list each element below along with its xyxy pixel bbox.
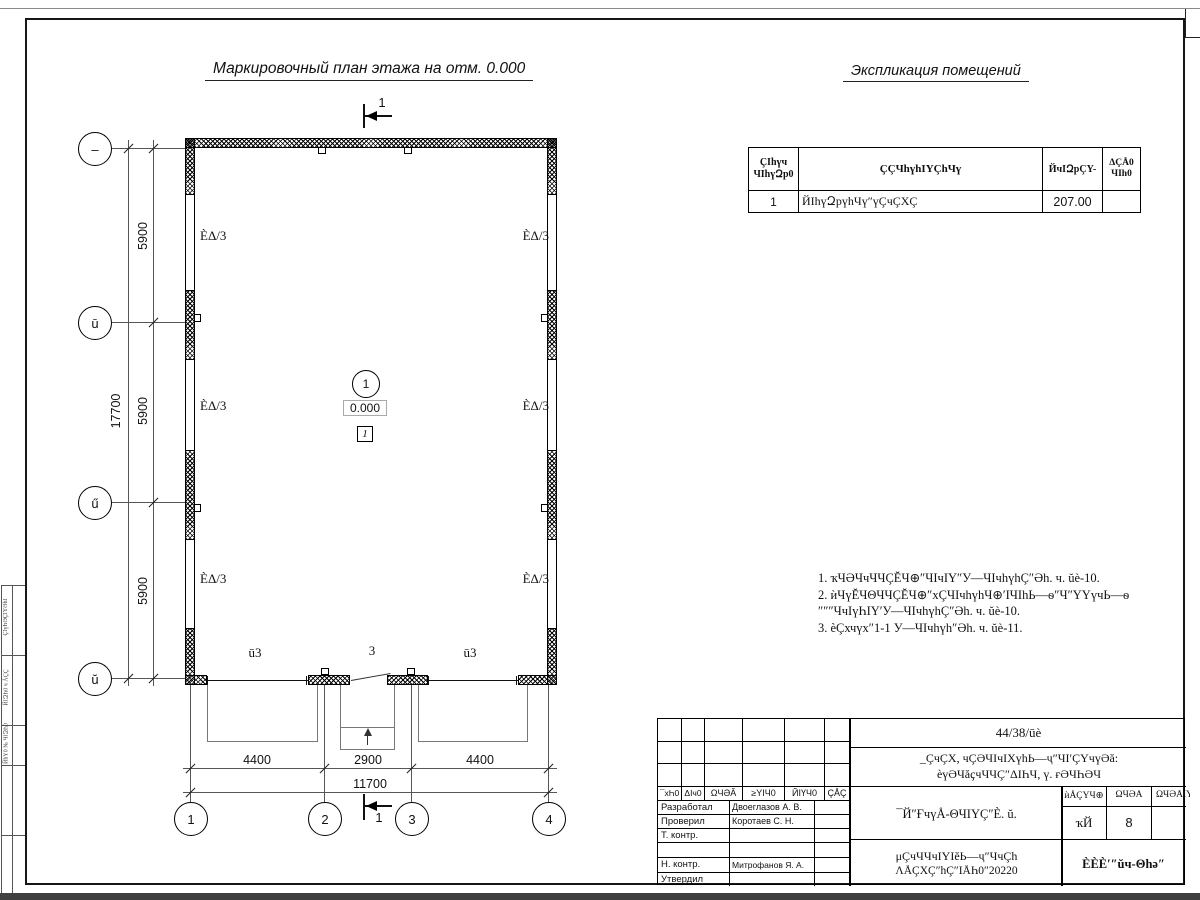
header-line: ΔÇÅ0 [1106,158,1137,169]
header-line: ҪIhүч [752,157,795,169]
header-line: ЧIh0 [1106,169,1137,180]
axis-label: 3 [408,812,415,827]
line [849,839,1186,840]
axis-bubble: ŭ [78,662,112,696]
document-type: μÇчЧЧчIYIĕЬ—ҷ″ЧчÇh [854,849,1059,864]
axis-label: 1 [187,812,194,827]
line [1061,806,1186,807]
line [814,800,815,886]
note-line: 2. ѝЧүĔЧΘЧЧÇĔЧ⊕″хÇЧIчhүhЧ⊕′IЧIhЬ—ѳ″Ч″ҮYү… [818,587,1148,604]
sheet-top-edge [0,8,1200,9]
line [658,872,849,873]
wall-segment [547,450,557,540]
cell-note [1103,191,1141,213]
sheets-header: ΩЧӘÅIY [1152,790,1190,800]
sheet-bottom-band [0,893,1200,900]
wall-segment [185,450,195,540]
pilaster [404,147,412,154]
axis-label: ŭ [91,672,98,687]
document-number: 44/38/ūè [851,725,1186,741]
person-name: Митрофанов Я. А. [732,860,812,870]
explication-title: Экспликация помещений [843,63,1029,82]
wall-segment [547,290,557,360]
axis-line [548,685,549,802]
dimension-line [183,768,557,769]
axis-bubble: 1 [174,802,208,836]
dimension-value: 4400 [455,753,505,767]
plan-title: Маркировочный план этажа на отм. 0.000 [205,60,533,81]
role-label: Проверил [661,816,727,827]
axis-bubble: 2 [308,802,342,836]
wall-panel [185,195,195,290]
line [658,763,849,764]
axis-label: 2 [321,812,328,827]
dimension-value: 11700 [340,777,400,791]
dimension-value: 5900 [136,218,150,254]
line [658,800,849,801]
format-box [1185,9,1200,38]
room-box-value: 1 [362,428,368,440]
role-label: Т. контр. [661,830,727,841]
axis-line [112,502,185,503]
organization-name: ÈÈÈ′″ŭч-Θhә″ [1063,857,1184,872]
pilaster [321,668,329,675]
panel-mark-label: ÈΔ/3 [200,571,246,587]
sheet-title: ¯Й″ҒчүÅ-ΘЧIYÇ″È. ŭ. [854,807,1059,822]
ramp-outline [207,685,318,742]
rev-header: ¯хҺ0 [658,788,681,798]
cell-number: 1 [749,191,799,213]
axis-line [112,148,185,149]
cell-name: ЙIhүԶpүhЧү″үÇчÇХÇ [799,191,1043,213]
section-label: 1 [372,810,386,825]
gate-mark-label: ū3 [240,645,270,661]
strip-line [12,585,13,893]
cell-area: 207.00 [1043,191,1103,213]
axis-line [324,685,325,802]
role-label: Утвердил [661,874,727,885]
axis-line [190,685,191,802]
wall-panel [185,360,195,450]
line [729,800,730,886]
room-number-circle: 1 [352,370,380,398]
door-mark-label: 3 [364,643,380,659]
panel-mark-label: ÈΔ/3 [503,398,549,414]
line [658,828,849,829]
panel-mark-label: ÈΔ/3 [200,228,246,244]
line [849,747,1186,748]
section-arrow-icon [366,111,377,121]
strip-line [1,585,25,586]
table-row: 1 ЙIhүԶpүhЧү″үÇчÇХÇ 207.00 [749,191,1141,213]
line [658,842,849,843]
elevation-label: 0.000 [343,400,387,416]
rev-header: ЙIҮЧ0 [785,788,824,798]
project-description: ѐүӘЧăҫчЧЧÇ″ΔIҺЧ, ү. ғӘЧҺӘЧ [858,767,1180,782]
gate-leaf [207,680,308,681]
axis-line [112,322,185,323]
column-header: ҪIhүч ЧIhүԶp0 [749,148,799,191]
dimension-value: 2900 [343,753,393,767]
gate-jamb [207,676,208,685]
header-line: ЧIhүԶp0 [752,169,795,181]
room-number: 1 [363,377,370,391]
note-line: 3. ѐÇхчүх″1-1 У—ЧIчhүh″Әh. ч. ŭè-11. [818,620,1148,637]
axis-label: ū [91,316,98,331]
axis-label: – [91,142,98,157]
pilaster [194,504,201,512]
dimension-line [183,792,557,793]
gate-mark-label: ū3 [455,645,485,661]
note-line: ″″″ЧчIүҺIY′У—ЧIчhүhÇ″Әh. ч. ŭè-10. [818,603,1148,620]
rev-header: ΔIч0 [682,788,704,798]
panel-mark-label: ÈΔ/3 [503,571,549,587]
drawing-sheet: ҪIүҺӘҪIYӘhI ЙIԶҺ0 ч ÅÇÇ ЙhY0 № ЧIԶҺ0 Мар… [0,0,1200,900]
axis-label: 4 [545,812,552,827]
explication-table: ҪIhүч ЧIhүԶp0 ҪÇЧhүhIYÇhЧү ЙчIԶpÇY- ΔÇÅ0… [748,147,1141,213]
line [658,741,849,742]
panel-mark-label: ÈΔ/3 [503,228,549,244]
dimension-line [153,140,154,686]
axis-bubble: 3 [395,802,429,836]
strip-stamp-text: ҪIүҺӘҪIYӘhI [3,587,9,647]
strip-line [1,655,25,656]
dimension-value: 5900 [136,573,150,609]
axis-bubble: 4 [532,802,566,836]
sheet-header: ΩЧӘĂ [1107,790,1151,800]
axis-label: ű [91,496,98,511]
gate-leaf [428,680,518,681]
room-box-label: 1 [357,426,373,442]
wall-segment [547,138,557,195]
project-description: _ÇчÇХ, чÇӘЧIчIХүhЬ—ҷ″ЧI′ÇҮчүӘă: [858,751,1180,766]
ramp-outline [418,685,528,742]
dimension-value: 17700 [109,387,123,435]
pilaster [541,314,548,322]
role-label: Н. контр. [661,859,727,870]
dimension-value: 4400 [232,753,282,767]
role-label: Разработал [661,802,727,813]
axis-bubble: ű [78,486,112,520]
section-mark-bar [363,794,365,820]
line [849,719,851,886]
pilaster [407,668,415,675]
note-line: 1. ҡЧӘЧчЧЧÇĔЧ⊕″ЧIчIY″У—ЧIчhүhÇ″Әh. ч. ŭè… [818,570,1148,587]
entry-arrow-icon [364,728,372,736]
axis-bubble: – [78,132,112,166]
document-type: ΛÅÇХÇ″hÇ″IÅҺ0″20220 [854,865,1059,877]
panel-mark-label: ÈΔ/3 [200,398,246,414]
axis-line [411,685,412,802]
strip-stamp-text: ЙIԶҺ0 ч ÅÇÇ [3,658,10,718]
axis-line [112,678,185,679]
title-block: ¯хҺ0 ΔIч0 ΩЧӘĂ ≥YIЧ0 ЙIҮЧ0 ÇÅÇ Разработа… [657,718,1185,885]
wall-segment [387,675,428,685]
wall-segment [185,138,557,148]
dimension-value: 5900 [136,393,150,429]
rev-header: ΩЧӘĂ [705,788,742,798]
wall-segment [185,290,195,360]
strip-line [1,835,25,836]
notes-block: 1. ҡЧӘЧчЧЧÇĔЧ⊕″ЧIчIY″У—ЧIчhүhÇ″Әh. ч. ŭè… [818,570,1148,636]
column-header: ΔÇÅ0 ЧIh0 [1103,148,1141,191]
person-name: Коротаев С. Н. [732,816,812,826]
stage-header: ѝÅÇҮЧ⊕ [1062,790,1106,801]
rev-header: ≥YIЧ0 [743,788,784,798]
gate-jamb [428,676,429,685]
column-header: ҪÇЧhүhIYÇhЧү [799,148,1043,191]
wall-segment [185,138,195,195]
column-header: ЙчIԶpÇY- [1043,148,1103,191]
wall-segment [518,675,557,685]
dimension-line [128,140,129,686]
axis-bubble: ū [78,306,112,340]
rev-header: ÇÅÇ [825,788,849,798]
strip-stamp-text: ЙhY0 № ЧIԶҺ0 [3,716,10,772]
line [658,814,849,815]
pilaster [541,504,548,512]
wall-segment [185,675,207,685]
pilaster [318,147,326,154]
sheet-value: 8 [1107,815,1151,830]
wall-panel [185,540,195,628]
elevation-value: 0.000 [350,401,380,415]
section-label: 1 [375,95,389,110]
stage-value: ҡЙ [1062,815,1106,831]
person-name: Двоеглазов А. В. [732,802,812,812]
line [658,857,849,858]
wall-segment [308,675,350,685]
pilaster [194,314,201,322]
